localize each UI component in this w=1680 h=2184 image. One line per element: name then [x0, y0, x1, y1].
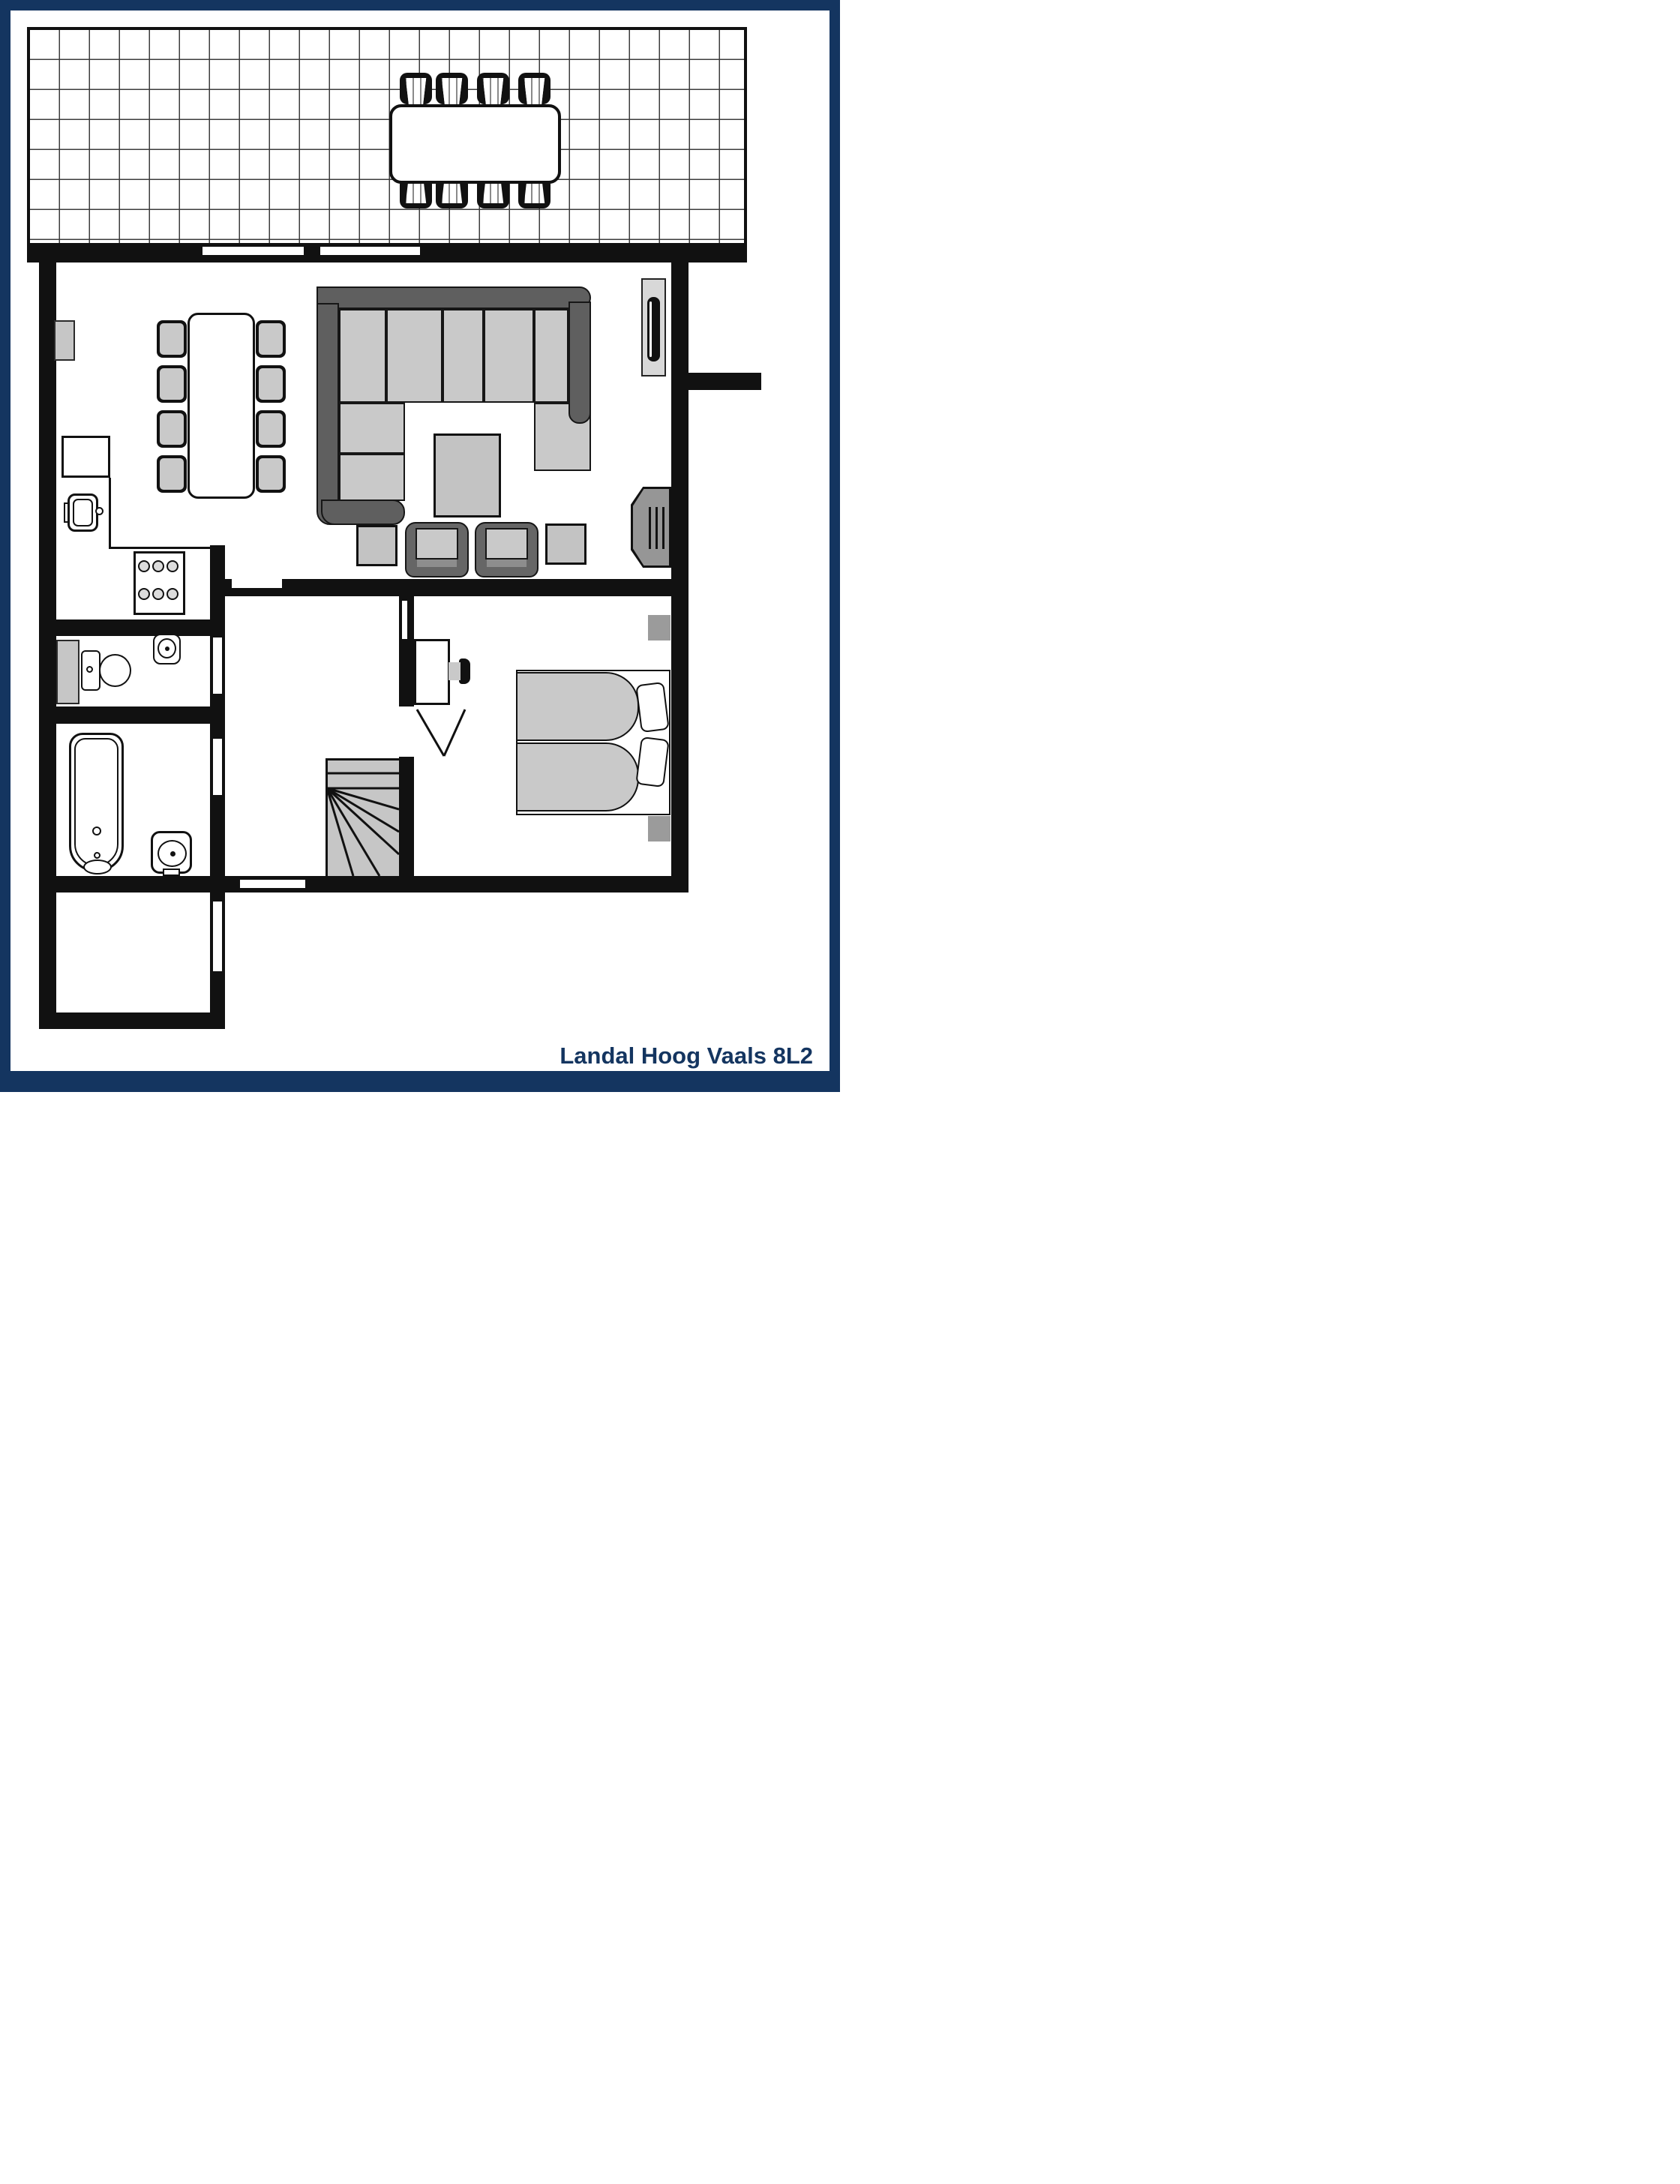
frame-bottom	[0, 1071, 840, 1092]
desk	[414, 639, 450, 705]
floor-plan: Landal Hoog Vaals 8L2	[0, 0, 840, 1092]
dining-chair-icon	[157, 320, 187, 358]
armchair-seat	[415, 528, 458, 559]
wall-storage-bottom	[39, 1012, 225, 1029]
burner-icon	[138, 560, 150, 572]
dining-chair-icon	[256, 410, 286, 448]
side-table-icon	[356, 525, 397, 566]
kitchen-counter-edge-h	[109, 547, 210, 549]
window-top-2	[320, 247, 420, 255]
toilet-bowl	[99, 654, 131, 687]
dining-chair-icon	[157, 365, 187, 403]
bedroom-door-swing	[414, 706, 468, 759]
burner-icon	[152, 588, 164, 600]
dining-chair-icon	[256, 455, 286, 493]
dining-chair-icon	[157, 455, 187, 493]
kitchen-counter-edge-v	[109, 478, 111, 549]
burner-icon	[138, 588, 150, 600]
armchair-seat	[485, 528, 528, 559]
dining-chair-icon	[256, 365, 286, 403]
desk-chair-seat	[448, 662, 460, 680]
tv-icon	[641, 278, 666, 376]
door-storage	[213, 901, 222, 971]
sofa-cushion	[534, 309, 568, 403]
dining-chair-icon	[256, 320, 286, 358]
armchair-icon	[405, 522, 469, 577]
window-top-1	[202, 247, 304, 255]
wall-storage-left	[39, 892, 56, 1029]
sofa-arm-left	[316, 303, 339, 525]
armchair-seat-edge	[417, 559, 457, 567]
dining-table-icon	[187, 313, 255, 499]
bathtub-inner	[74, 738, 118, 866]
tv-screen	[647, 297, 660, 361]
terrace-chair-icon	[518, 73, 550, 104]
side-table-icon	[545, 523, 586, 565]
fireplace-vent	[655, 507, 658, 549]
terrace-chair-seat	[520, 78, 548, 104]
burner-icon	[166, 588, 178, 600]
sofa-cushion	[339, 454, 405, 501]
dining-chair-seat	[259, 323, 283, 355]
burner-icon	[166, 560, 178, 572]
coffee-table-icon	[433, 433, 501, 517]
wall-bottom	[39, 876, 688, 892]
burner-icon	[152, 560, 164, 572]
sofa-cushion	[339, 403, 405, 454]
washbasin-icon	[151, 831, 192, 874]
wall-hall-bedroom-lower	[399, 757, 414, 876]
terrace-chair-seat	[402, 78, 430, 104]
dining-chair-seat	[160, 323, 184, 355]
fireplace-icon	[631, 487, 671, 568]
bath1-sink-icon	[153, 634, 181, 664]
duvet	[516, 672, 639, 741]
dining-chair-seat	[160, 368, 184, 400]
door-bedroom-top	[402, 601, 407, 639]
door-bath1	[213, 637, 222, 694]
sofa-cushion	[484, 309, 534, 403]
bathtub-icon	[69, 733, 124, 871]
washbasin-pedestal	[163, 868, 180, 876]
sofa-arm-bottom	[321, 499, 405, 525]
nightstand-icon	[648, 816, 670, 841]
fireplace-vent	[649, 507, 651, 549]
wall-stub-right	[688, 373, 761, 390]
dining-chair-seat	[160, 458, 184, 490]
fireplace-vent	[662, 507, 664, 549]
kitchen-cupboard	[61, 436, 110, 478]
winder-staircase-icon	[325, 758, 399, 876]
terrace-tiles	[27, 27, 747, 244]
window-bottom	[240, 880, 305, 888]
wall-kitchen-bath1	[39, 619, 225, 636]
terrace-dining-table-icon	[389, 104, 561, 184]
kitchen-sink-basin	[73, 499, 93, 526]
wall-bath1-bath2	[39, 706, 225, 724]
sofa-back-icon	[316, 286, 591, 309]
toilet-flush	[86, 666, 93, 673]
pillow-icon	[635, 736, 670, 787]
dining-chair-seat	[259, 413, 283, 445]
plan-title: Landal Hoog Vaals 8L2	[559, 1042, 813, 1069]
nightstand-icon	[648, 615, 670, 640]
tv-screen-glare	[649, 301, 652, 357]
sofa-cushion	[386, 309, 442, 403]
terrace-chair-icon	[400, 73, 432, 104]
dining-chair-seat	[259, 368, 283, 400]
dining-chair-seat	[259, 458, 283, 490]
bath1-sink-drain	[165, 646, 169, 651]
desk-chair-icon	[459, 658, 470, 684]
frame-left	[0, 0, 10, 1092]
door-living-hall	[232, 579, 282, 588]
dining-chair-icon	[157, 410, 187, 448]
frame-right	[829, 0, 840, 1092]
frame-top	[0, 0, 840, 10]
sofa-back-right	[568, 301, 591, 424]
radiator-icon	[54, 320, 75, 361]
terrace-chair-icon	[477, 73, 509, 104]
bathtub-faucet	[83, 859, 112, 874]
duvet	[516, 742, 639, 811]
wall-right	[671, 243, 688, 892]
bathtub-drain	[92, 826, 101, 835]
bath1-radiator	[56, 640, 79, 704]
terrace-chair-icon	[436, 73, 468, 104]
dining-chair-seat	[160, 413, 184, 445]
kitchen-faucet	[95, 507, 103, 515]
sofa-cushion	[339, 309, 386, 403]
armchair-seat-edge	[487, 559, 526, 567]
terrace-chair-seat	[438, 78, 466, 104]
washbasin-drain	[170, 851, 175, 856]
armchair-icon	[475, 522, 538, 577]
bathtub-faucet-knob	[94, 852, 100, 859]
terrace-chair-seat	[479, 78, 507, 104]
kitchen-sink-icon	[67, 493, 98, 532]
sofa-cushion	[442, 309, 484, 403]
door-bath2	[213, 739, 222, 795]
pillow-icon	[635, 682, 670, 733]
kitchen-sink-tab	[64, 502, 69, 523]
